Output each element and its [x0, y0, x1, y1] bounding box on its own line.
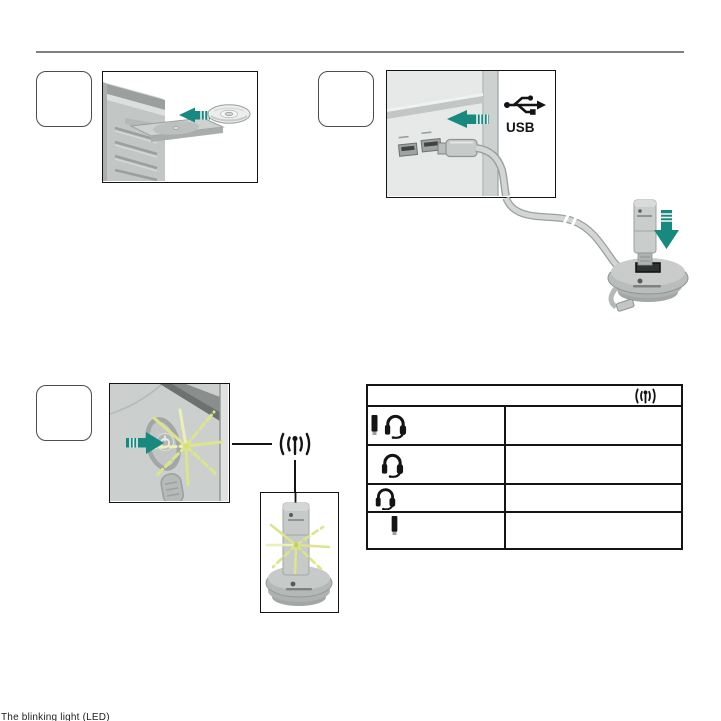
usb-receiver-icon	[390, 516, 399, 536]
table-row	[368, 405, 681, 444]
headset-power-button-icon	[110, 384, 228, 501]
wireless-signal-icon	[275, 429, 315, 459]
status-icon-cell	[368, 407, 506, 444]
status-icon-cell	[368, 513, 506, 548]
status-table	[366, 384, 683, 550]
cd-insert-illustration	[102, 71, 258, 183]
status-text-cell	[506, 407, 681, 444]
pointer-line-horizontal	[232, 443, 272, 445]
receiver-into-base-illustration	[430, 130, 721, 340]
receiver-blink-illustration	[260, 492, 339, 613]
table-row	[368, 483, 681, 511]
receiver-on-base-icon	[261, 493, 337, 611]
cd-disc-icon	[208, 105, 250, 123]
charging-base-icon	[608, 258, 688, 312]
computer-cd-tray-icon	[103, 72, 256, 181]
power-button-illustration	[109, 383, 230, 503]
bottom-caption: The blinking light (LED)	[1, 712, 110, 721]
step-2-box	[318, 71, 374, 127]
step-3-box	[36, 385, 92, 441]
top-divider	[36, 51, 684, 53]
headset-icon	[380, 452, 405, 478]
usb-receiver-icon	[634, 200, 656, 265]
status-icon-cell	[368, 446, 506, 483]
headset-icon	[374, 487, 397, 510]
insert-down-arrow-icon	[654, 210, 679, 249]
usb-icon	[504, 95, 546, 114]
status-text-cell	[506, 513, 681, 548]
headset-icon	[383, 413, 408, 439]
wireless-signal-icon	[632, 387, 659, 405]
pointer-line-vertical	[294, 460, 296, 492]
status-icon-cell	[368, 485, 506, 511]
manual-page: USB	[0, 0, 721, 721]
table-row	[368, 511, 681, 548]
status-text-cell	[506, 485, 681, 511]
usb-receiver-icon	[370, 415, 379, 436]
step-1-box	[36, 71, 92, 127]
table-row	[368, 444, 681, 483]
status-table-header	[368, 386, 681, 405]
status-text-cell	[506, 446, 681, 483]
